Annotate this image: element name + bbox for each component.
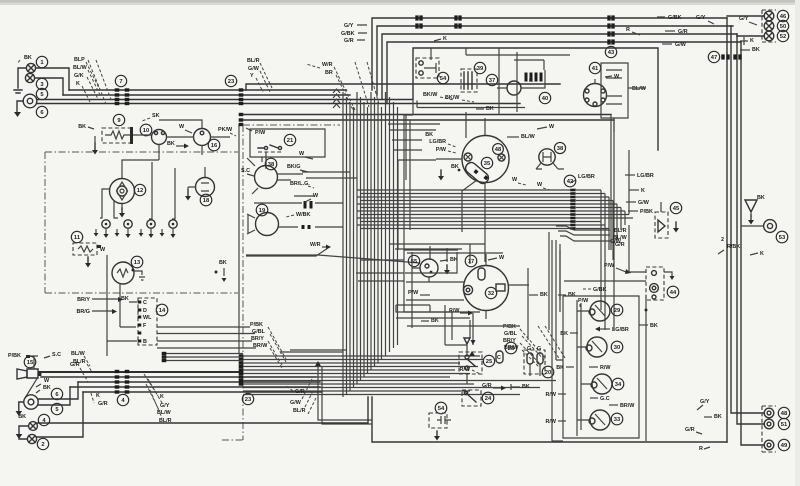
svg-text:P/BK: P/BK [250, 322, 263, 328]
svg-text:P/W: P/W [604, 263, 615, 269]
svg-text:R: R [626, 27, 630, 33]
svg-text:K: K [76, 81, 80, 87]
svg-text:WL: WL [143, 315, 152, 321]
svg-text:48: 48 [781, 411, 788, 417]
svg-text:17: 17 [468, 259, 474, 265]
svg-text:G/W: G/W [675, 42, 687, 48]
svg-text:BK: BK [486, 106, 494, 112]
svg-text:G/R: G/R [344, 38, 354, 44]
svg-text:37: 37 [489, 78, 495, 84]
svg-text:23: 23 [228, 79, 235, 85]
svg-text:33: 33 [614, 417, 621, 423]
svg-text:21: 21 [287, 138, 294, 144]
svg-text:13: 13 [134, 260, 141, 266]
svg-text:C: C [497, 355, 501, 361]
svg-text:18: 18 [203, 198, 210, 204]
svg-text:K: K [760, 251, 764, 257]
svg-text:BR/Y: BR/Y [251, 336, 264, 342]
svg-text:W/BK: W/BK [296, 212, 310, 218]
svg-text:BK: BK [757, 195, 765, 201]
svg-text:G/W: G/W [290, 400, 302, 406]
svg-text:K: K [443, 36, 447, 42]
svg-text:BR/W: BR/W [253, 343, 268, 349]
svg-text:2: 2 [721, 237, 724, 243]
svg-text:G/R: G/R [615, 242, 625, 248]
svg-text:P/BK: P/BK [8, 353, 21, 359]
svg-text:BK: BK [540, 292, 548, 298]
svg-text:11: 11 [74, 235, 81, 241]
svg-text:D: D [143, 308, 147, 314]
svg-text:23: 23 [245, 397, 252, 403]
svg-text:45: 45 [673, 206, 680, 212]
svg-text:51: 51 [781, 422, 788, 428]
svg-text:R: R [699, 446, 703, 452]
svg-text:43: 43 [608, 50, 615, 56]
svg-text:10: 10 [143, 128, 149, 134]
svg-text:48: 48 [495, 147, 502, 153]
svg-text:BL/W: BL/W [521, 134, 536, 140]
svg-text:BR: BR [325, 70, 333, 76]
svg-text:BK/W: BK/W [445, 95, 460, 101]
svg-text:G/BL: G/BL [504, 331, 518, 337]
svg-text:35: 35 [484, 161, 491, 167]
svg-text:G/Y: G/Y [160, 403, 170, 409]
svg-text:BK: BK [650, 323, 658, 329]
svg-text:47: 47 [711, 55, 717, 61]
svg-text:20: 20 [545, 370, 551, 376]
svg-text:49: 49 [781, 443, 788, 449]
svg-text:7: 7 [119, 79, 122, 85]
svg-text:G/W: G/W [248, 66, 260, 72]
svg-text:BR/W: BR/W [504, 345, 519, 351]
svg-text:BK: BK [752, 47, 760, 53]
svg-text:19: 19 [259, 208, 266, 214]
svg-text:BK: BK [522, 384, 530, 390]
svg-text:BL/R: BL/R [159, 418, 172, 424]
svg-text:S.C: S.C [241, 168, 250, 174]
svg-text:BLP: BLP [74, 57, 85, 63]
svg-text:LG/BR: LG/BR [578, 174, 595, 180]
svg-text:BK: BK [219, 260, 227, 266]
svg-text:G/R: G/R [685, 427, 695, 433]
svg-text:40: 40 [542, 96, 548, 102]
svg-text:12: 12 [137, 188, 143, 194]
svg-text:BK: BK [451, 164, 459, 170]
svg-text:G/Y: G/Y [344, 23, 354, 29]
svg-text:41: 41 [592, 66, 599, 72]
svg-text:BR/Y: BR/Y [77, 297, 90, 303]
svg-text:G/BK: G/BK [668, 15, 682, 21]
svg-text:LG/BR: LG/BR [429, 139, 446, 145]
svg-text:29: 29 [614, 308, 621, 314]
svg-text:BL/R: BL/R [293, 408, 306, 414]
svg-text:P/W: P/W [578, 298, 589, 304]
svg-text:BK: BK [425, 132, 433, 138]
svg-text:BK: BK [78, 124, 86, 130]
svg-text:BL/W: BL/W [71, 351, 86, 357]
svg-text:PK/W: PK/W [218, 127, 233, 133]
svg-text:LG/BR: LG/BR [612, 327, 629, 333]
svg-text:R/W: R/W [600, 365, 611, 371]
svg-text:K: K [641, 188, 645, 194]
svg-text:G/R: G/R [482, 383, 492, 389]
svg-text:BK: BK [568, 292, 576, 298]
svg-text:W/R: W/R [322, 62, 333, 68]
svg-text:52: 52 [780, 34, 786, 40]
svg-text:BK: BK [431, 318, 439, 324]
svg-text:54: 54 [440, 76, 447, 82]
svg-text:G/Y: G/Y [700, 399, 710, 405]
svg-text:R/BK: R/BK [727, 244, 740, 250]
svg-text:G/R: G/R [295, 389, 305, 395]
svg-text:BR/G: BR/G [77, 309, 90, 315]
svg-text:BR/Y: BR/Y [503, 338, 516, 344]
svg-text:K: K [96, 393, 100, 399]
svg-text:W/R: W/R [310, 242, 321, 248]
svg-text:R/W: R/W [546, 392, 557, 398]
svg-text:54: 54 [438, 406, 445, 412]
svg-text:B: B [143, 339, 147, 345]
svg-text:BL/R: BL/R [614, 228, 627, 234]
svg-text:BL/W: BL/W [73, 65, 88, 71]
svg-text:15: 15 [27, 360, 34, 366]
svg-text:G/BK: G/BK [593, 287, 607, 293]
svg-text:R/W: R/W [449, 308, 460, 314]
svg-text:G/W: G/W [638, 200, 650, 206]
svg-text:BK: BK [121, 296, 129, 302]
svg-text:BK: BK [43, 385, 51, 391]
svg-text:G/K: G/K [74, 73, 84, 79]
svg-text:BK: BK [714, 414, 722, 420]
svg-text:G.C: G.C [600, 396, 610, 402]
svg-text:Y: Y [250, 73, 254, 79]
svg-text:K: K [750, 38, 754, 44]
svg-text:BK: BK [18, 414, 26, 420]
svg-text:14: 14 [159, 308, 166, 314]
svg-text:BK: BK [24, 55, 32, 61]
svg-text:G/Y: G/Y [739, 16, 749, 22]
svg-text:G/R: G/R [678, 29, 688, 35]
svg-text:P/W: P/W [436, 147, 447, 153]
svg-text:BK: BK [556, 365, 564, 371]
svg-text:53: 53 [779, 235, 786, 241]
svg-text:P/BK: P/BK [640, 209, 653, 215]
svg-text:34: 34 [615, 382, 622, 388]
svg-text:24: 24 [485, 396, 492, 402]
svg-text:K: K [160, 394, 164, 400]
svg-text:BK: BK [560, 331, 568, 337]
svg-text:38: 38 [557, 146, 564, 152]
svg-text:BK/G: BK/G [287, 164, 300, 170]
svg-text:G/R: G/R [70, 362, 80, 368]
svg-text:25: 25 [486, 359, 493, 365]
svg-text:32: 32 [488, 291, 494, 297]
svg-text:50: 50 [780, 24, 786, 30]
svg-text:BK/W: BK/W [423, 92, 438, 98]
svg-text:44: 44 [670, 290, 677, 296]
svg-text:C: C [143, 300, 147, 306]
svg-text:BR/L.G.: BR/L.G. [290, 181, 310, 187]
svg-text:2: 2 [41, 442, 44, 448]
svg-text:P/W: P/W [408, 290, 419, 296]
svg-text:BK: BK [167, 141, 175, 147]
svg-text:G/BK: G/BK [341, 31, 355, 37]
svg-text:BL/R: BL/R [247, 58, 260, 64]
svg-text:R/W: R/W [546, 419, 557, 425]
svg-text:P/W: P/W [255, 130, 266, 136]
svg-text:G/Y: G/Y [696, 15, 706, 21]
svg-text:BL/W: BL/W [613, 235, 628, 241]
svg-text:P/BK: P/BK [503, 324, 516, 330]
svg-text:38: 38 [268, 162, 275, 168]
svg-text:30: 30 [614, 345, 620, 351]
svg-text:BR/W: BR/W [620, 403, 635, 409]
svg-text:LG/BR: LG/BR [637, 173, 654, 179]
svg-text:G/BL: G/BL [252, 329, 266, 335]
svg-text:16: 16 [211, 143, 218, 149]
svg-text:BL/W: BL/W [632, 86, 647, 92]
svg-text:S.C: S.C [52, 352, 61, 358]
svg-text:46: 46 [780, 14, 787, 20]
svg-text:39: 39 [477, 66, 484, 72]
svg-text:SK: SK [152, 113, 160, 119]
svg-text:G/R: G/R [98, 401, 108, 407]
